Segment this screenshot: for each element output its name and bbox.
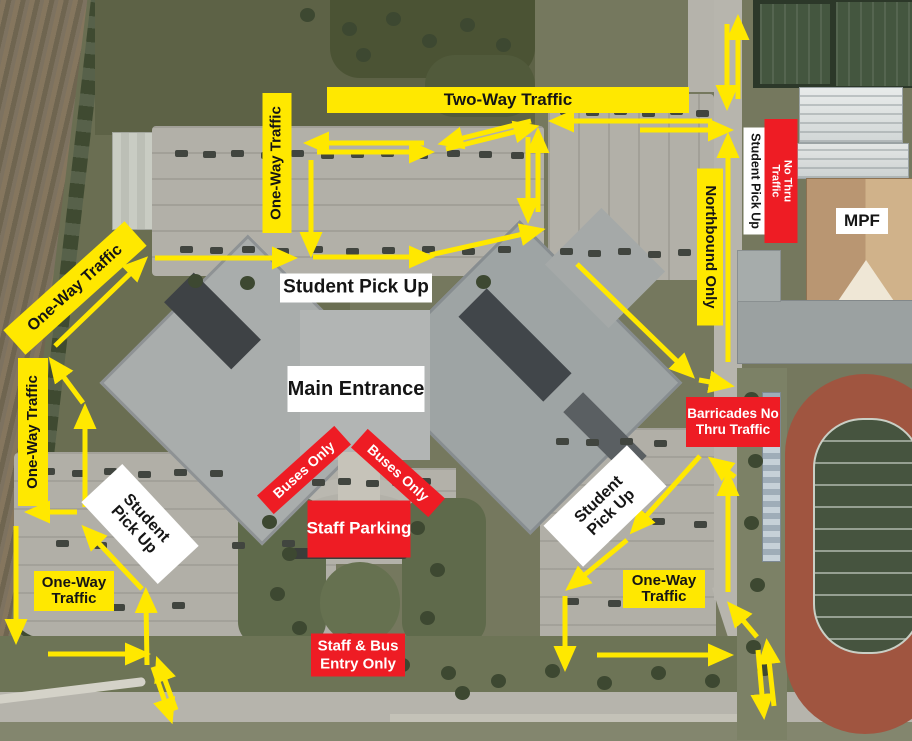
label-barricades-no-thru-traffic: Barricades No Thru Traffic bbox=[686, 397, 780, 447]
label-one-way-traffic-bottom-left: One-Way Traffic bbox=[34, 571, 114, 611]
white-roof-building-1 bbox=[799, 87, 903, 143]
label-one-way-traffic-bottom-right: One-Way Traffic bbox=[623, 570, 705, 608]
football-field bbox=[813, 418, 912, 654]
gray-roofs-right bbox=[737, 300, 912, 364]
tennis-court-2 bbox=[834, 0, 912, 88]
label-northbound-only: Northbound Only bbox=[697, 169, 723, 326]
bus-loop-island bbox=[320, 562, 400, 644]
trees-bus-loop bbox=[262, 515, 277, 529]
bus-loop-green-right bbox=[402, 498, 486, 646]
parked-cars-west-lot-2 bbox=[180, 246, 193, 253]
parked-cars-west-lot bbox=[175, 150, 188, 157]
campus-traffic-map: Two-Way Traffic One-Way Traffic One-Way … bbox=[0, 0, 912, 741]
label-one-way-traffic-vertical-left: One-Way Traffic bbox=[18, 358, 48, 506]
white-roof-building-2 bbox=[797, 143, 909, 179]
tennis-court-1 bbox=[758, 2, 832, 86]
label-staff-bus-entry-only: Staff & Bus Entry Only bbox=[311, 634, 405, 677]
label-no-thru-traffic-vertical: No Thru Traffic bbox=[765, 119, 798, 243]
trees-top bbox=[300, 8, 315, 22]
label-two-way-traffic: Two-Way Traffic bbox=[327, 87, 689, 113]
gray-roof-small bbox=[737, 250, 781, 302]
trees-west-lot-edge bbox=[188, 274, 203, 288]
label-one-way-traffic-vertical-top: One-Way Traffic bbox=[263, 93, 292, 233]
label-main-entrance: Main Entrance bbox=[288, 366, 425, 412]
label-mpf: MPF bbox=[836, 208, 888, 234]
label-staff-parking: Staff Parking bbox=[308, 501, 411, 558]
label-student-pick-up-vertical-right: Student Pick Up bbox=[744, 128, 767, 235]
parked-cars-right-lot bbox=[556, 438, 569, 445]
label-student-pick-up-center: Student Pick Up bbox=[280, 274, 432, 303]
